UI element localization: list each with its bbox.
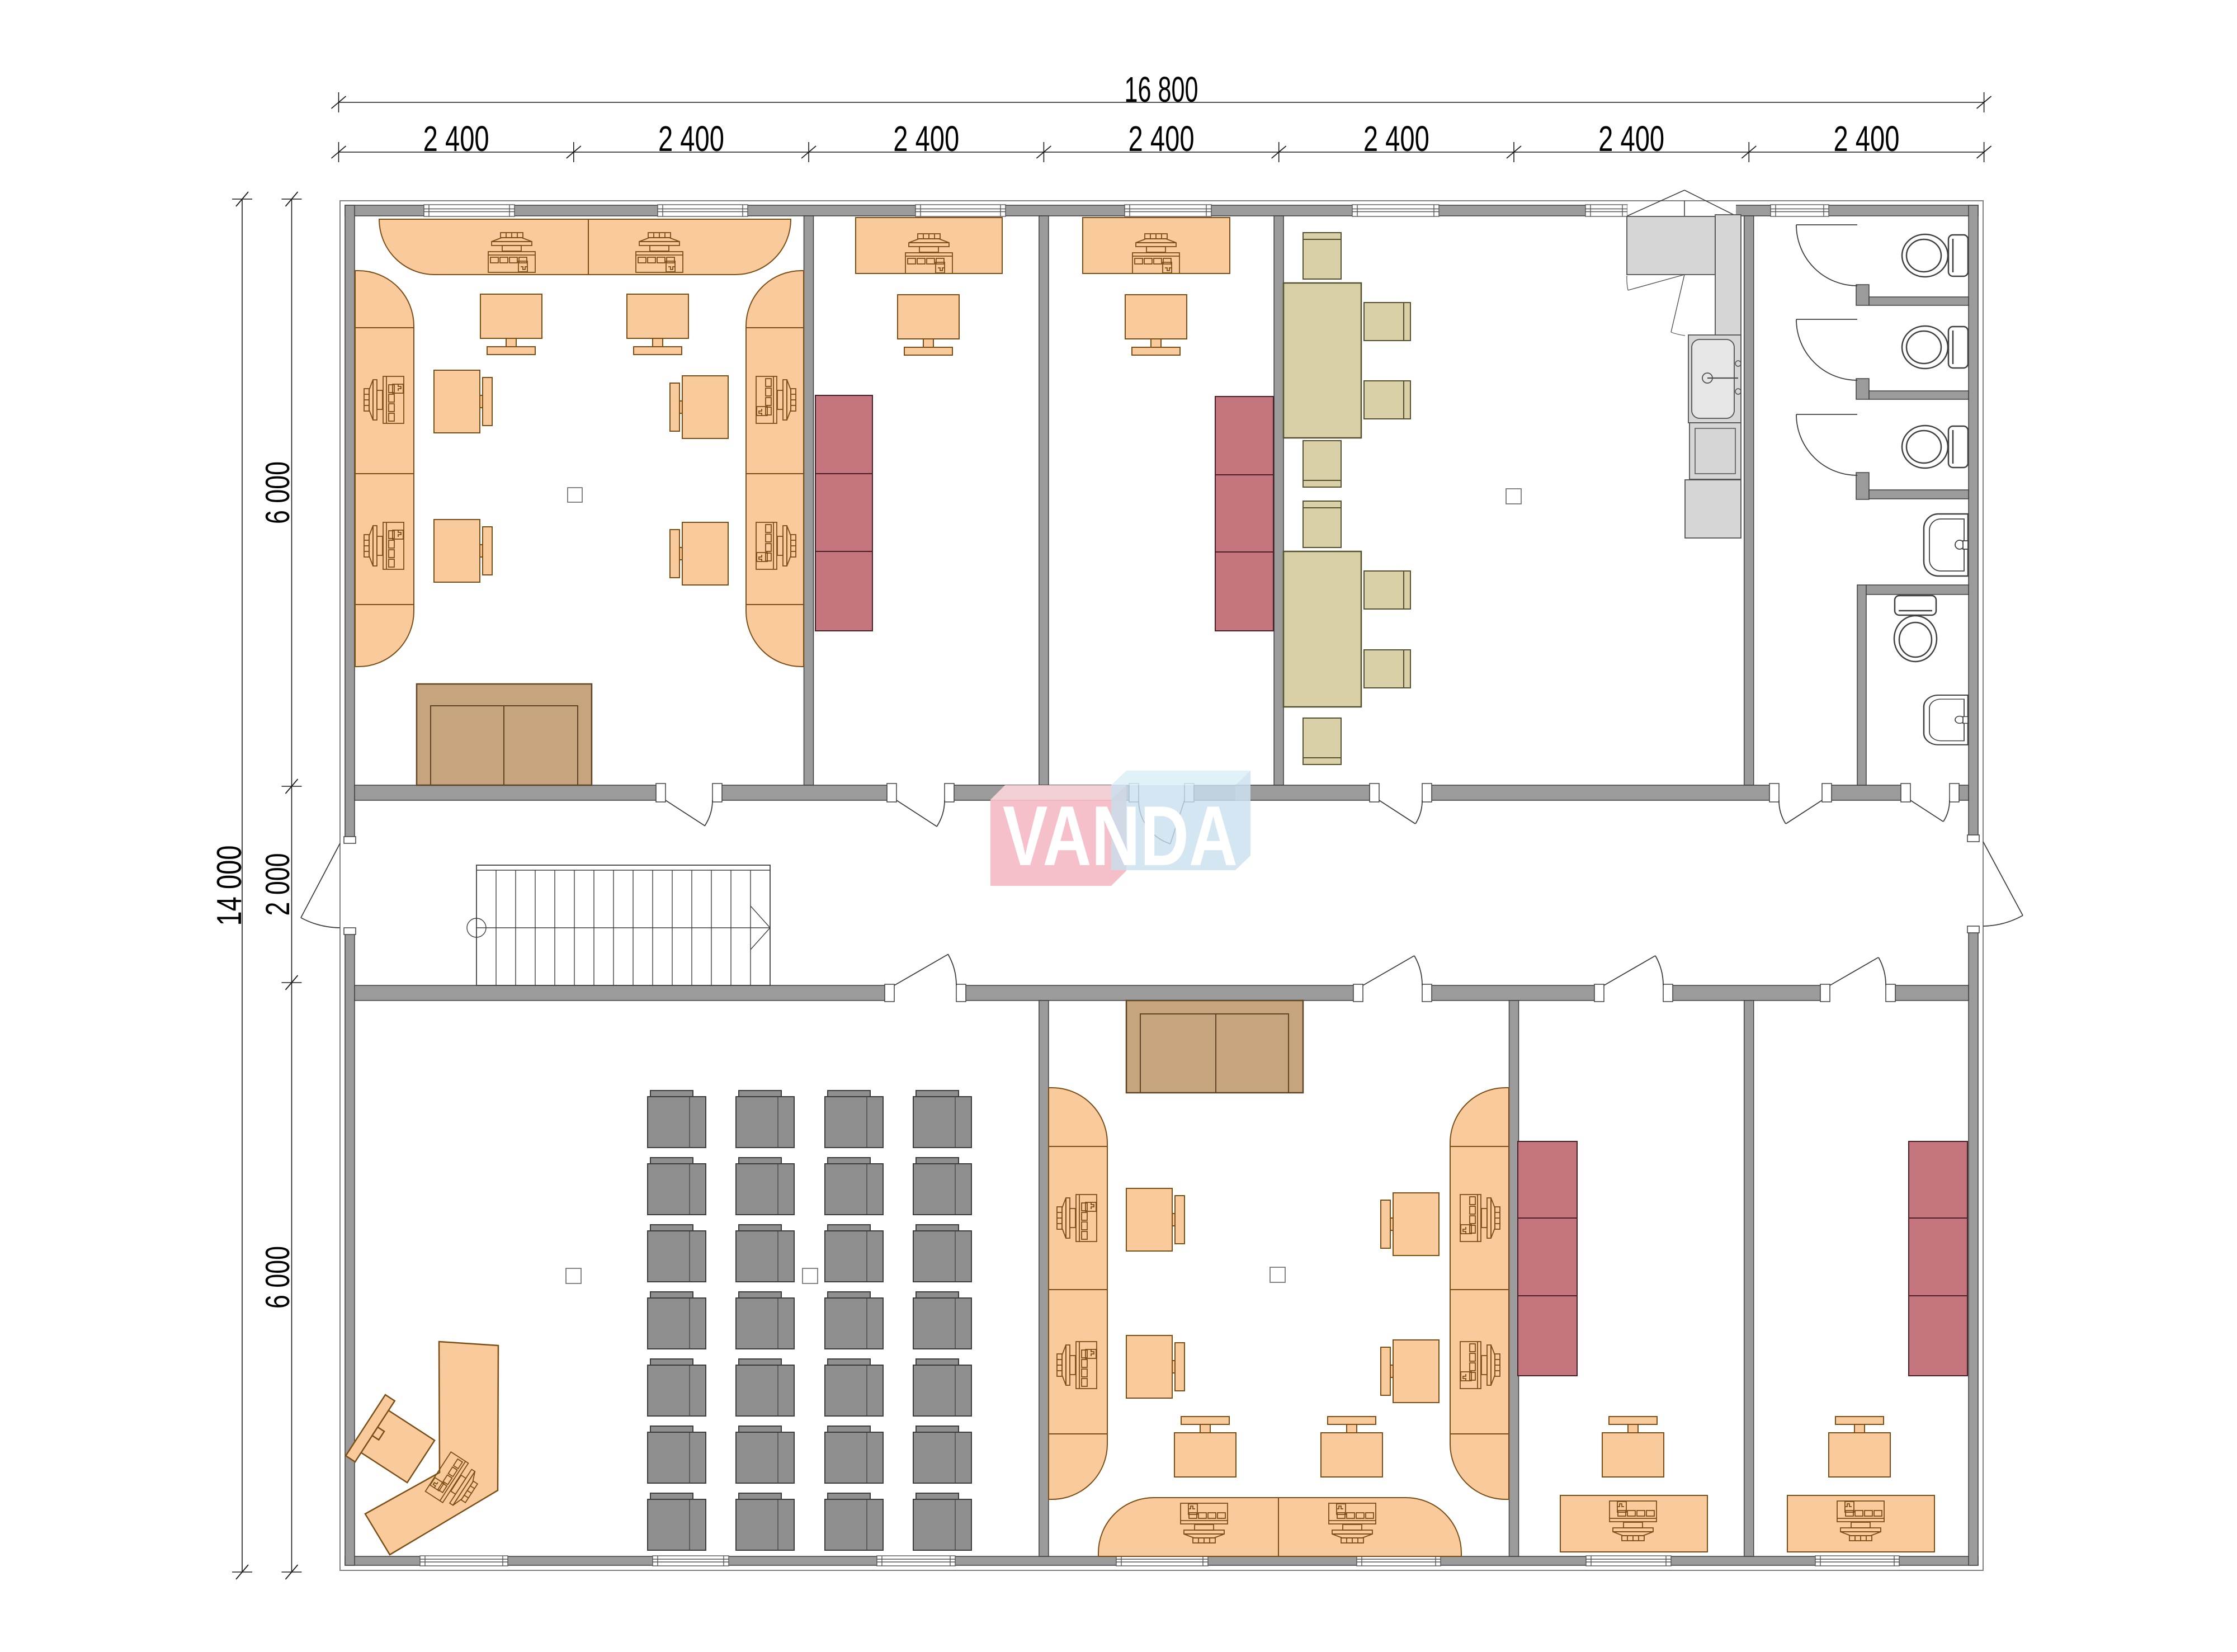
svg-text:2 400: 2 400 — [658, 119, 724, 159]
svg-text:2 400: 2 400 — [1129, 119, 1195, 159]
svg-text:6 000: 6 000 — [259, 461, 296, 524]
svg-text:2 400: 2 400 — [1598, 119, 1664, 159]
svg-text:2 000: 2 000 — [259, 853, 296, 916]
svg-text:2 400: 2 400 — [1363, 119, 1429, 159]
svg-text:2 400: 2 400 — [423, 119, 489, 159]
svg-text:2 400: 2 400 — [1833, 119, 1899, 159]
svg-text:2 400: 2 400 — [893, 119, 959, 159]
svg-text:16 800: 16 800 — [1125, 69, 1198, 110]
svg-text:VANDA: VANDA — [1003, 789, 1238, 884]
svg-text:6 000: 6 000 — [259, 1246, 296, 1309]
svg-text:14 000: 14 000 — [210, 846, 249, 926]
